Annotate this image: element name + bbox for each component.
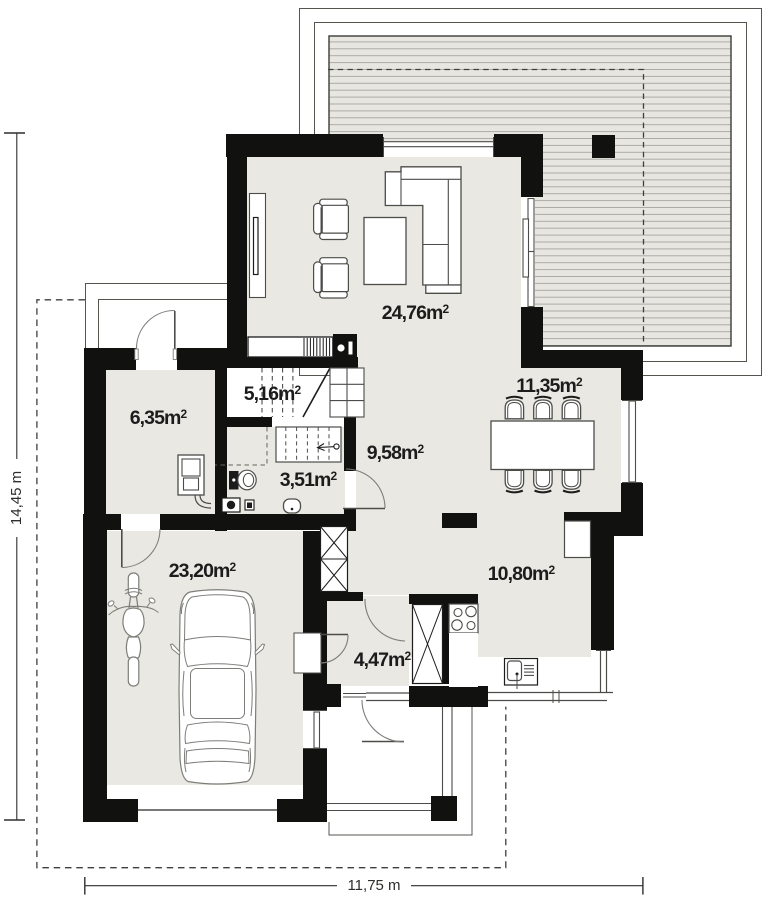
svg-text:14,45 m: 14,45 m bbox=[8, 471, 25, 525]
svg-text:11,35m2: 11,35m2 bbox=[516, 375, 583, 397]
svg-text:9,58m2: 9,58m2 bbox=[367, 442, 425, 464]
svg-text:5,16m2: 5,16m2 bbox=[244, 383, 302, 405]
svg-text:10,80m2: 10,80m2 bbox=[488, 563, 556, 585]
svg-text:11,75 m: 11,75 m bbox=[347, 877, 400, 894]
svg-text:6,35m2: 6,35m2 bbox=[130, 407, 188, 429]
svg-text:23,20m2: 23,20m2 bbox=[169, 560, 237, 582]
svg-text:24,76m2: 24,76m2 bbox=[382, 302, 450, 324]
svg-text:4,47m2: 4,47m2 bbox=[354, 649, 412, 671]
svg-text:3,51m2: 3,51m2 bbox=[280, 469, 338, 491]
